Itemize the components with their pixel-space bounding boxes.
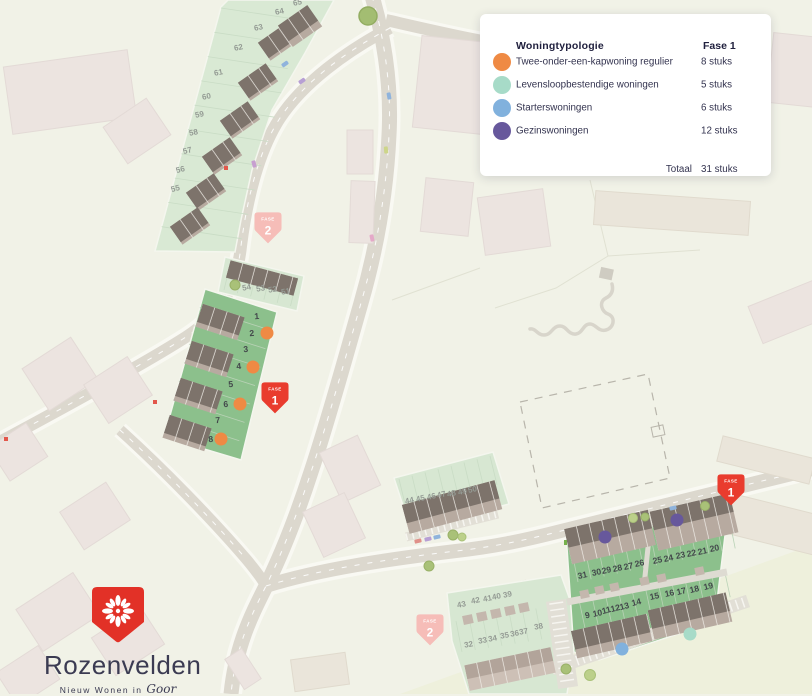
legend-row-count: 12 stuks bbox=[701, 125, 738, 136]
pin-fase-label: FASE bbox=[724, 478, 738, 483]
pin-number: 2 bbox=[265, 224, 272, 238]
unit-type-dot bbox=[671, 514, 684, 527]
unit-type-dot bbox=[599, 531, 612, 544]
fase-2-pin[interactable]: FASE2 bbox=[252, 210, 284, 245]
legend-row-label: Twee-onder-een-kapwoning regulier bbox=[516, 56, 673, 67]
logo-name: Rozenvelden bbox=[44, 650, 192, 681]
pin-number: 1 bbox=[272, 394, 279, 408]
unit-type-dot bbox=[234, 398, 247, 411]
map-page: { "colors": { "orange": "#ef8a44", "teal… bbox=[0, 0, 812, 694]
fase-2-pin[interactable]: FASE2 bbox=[414, 612, 446, 647]
legend-row-count: 5 stuks bbox=[701, 79, 732, 90]
legend-color-dot bbox=[493, 76, 511, 94]
unit-type-dot bbox=[215, 433, 228, 446]
legend-color-dot bbox=[493, 53, 511, 71]
logo: Rozenvelden Nieuw Wonen in Goor bbox=[44, 585, 192, 696]
logo-shield-icon bbox=[90, 585, 146, 643]
pin-fase-label: FASE bbox=[423, 618, 437, 623]
legend-color-dot bbox=[493, 99, 511, 117]
pin-fase-label: FASE bbox=[268, 386, 282, 391]
unit-type-dot bbox=[261, 327, 274, 340]
legend-row-label: Starterswoningen bbox=[516, 102, 592, 113]
pin-number: 2 bbox=[427, 626, 434, 640]
legend-rows: Twee-onder-een-kapwoning regulier 8 stuk… bbox=[480, 50, 771, 142]
legend-row-label: Levensloopbestendige woningen bbox=[516, 79, 659, 90]
legend-total-label: Totaal bbox=[620, 164, 692, 175]
unit-type-dot bbox=[684, 628, 697, 641]
legend-color-dot bbox=[493, 122, 511, 140]
unit-type-dot bbox=[247, 361, 260, 374]
legend-row: Gezinswoningen 12 stuks bbox=[480, 119, 771, 142]
legend-panel: Woningtypologie Fase 1 Twee-onder-een-ka… bbox=[480, 14, 771, 176]
legend-row-label: Gezinswoningen bbox=[516, 125, 588, 136]
legend-total-count: 31 stuks bbox=[701, 164, 738, 175]
unit-type-dot bbox=[616, 643, 629, 656]
roundabout-tree bbox=[359, 7, 377, 25]
legend-row-count: 8 stuks bbox=[701, 56, 732, 67]
fase-1-pin[interactable]: FASE1 bbox=[715, 472, 747, 507]
fase-1-pin[interactable]: FASE1 bbox=[259, 380, 291, 415]
pin-number: 1 bbox=[728, 486, 735, 500]
legend-row-count: 6 stuks bbox=[701, 102, 732, 113]
legend-row: Starterswoningen 6 stuks bbox=[480, 96, 771, 119]
pin-fase-label: FASE bbox=[261, 216, 275, 221]
legend-row: Twee-onder-een-kapwoning regulier 8 stuk… bbox=[480, 50, 771, 73]
legend-total-row: Totaal 31 stuks bbox=[480, 164, 771, 178]
legend-row: Levensloopbestendige woningen 5 stuks bbox=[480, 73, 771, 96]
